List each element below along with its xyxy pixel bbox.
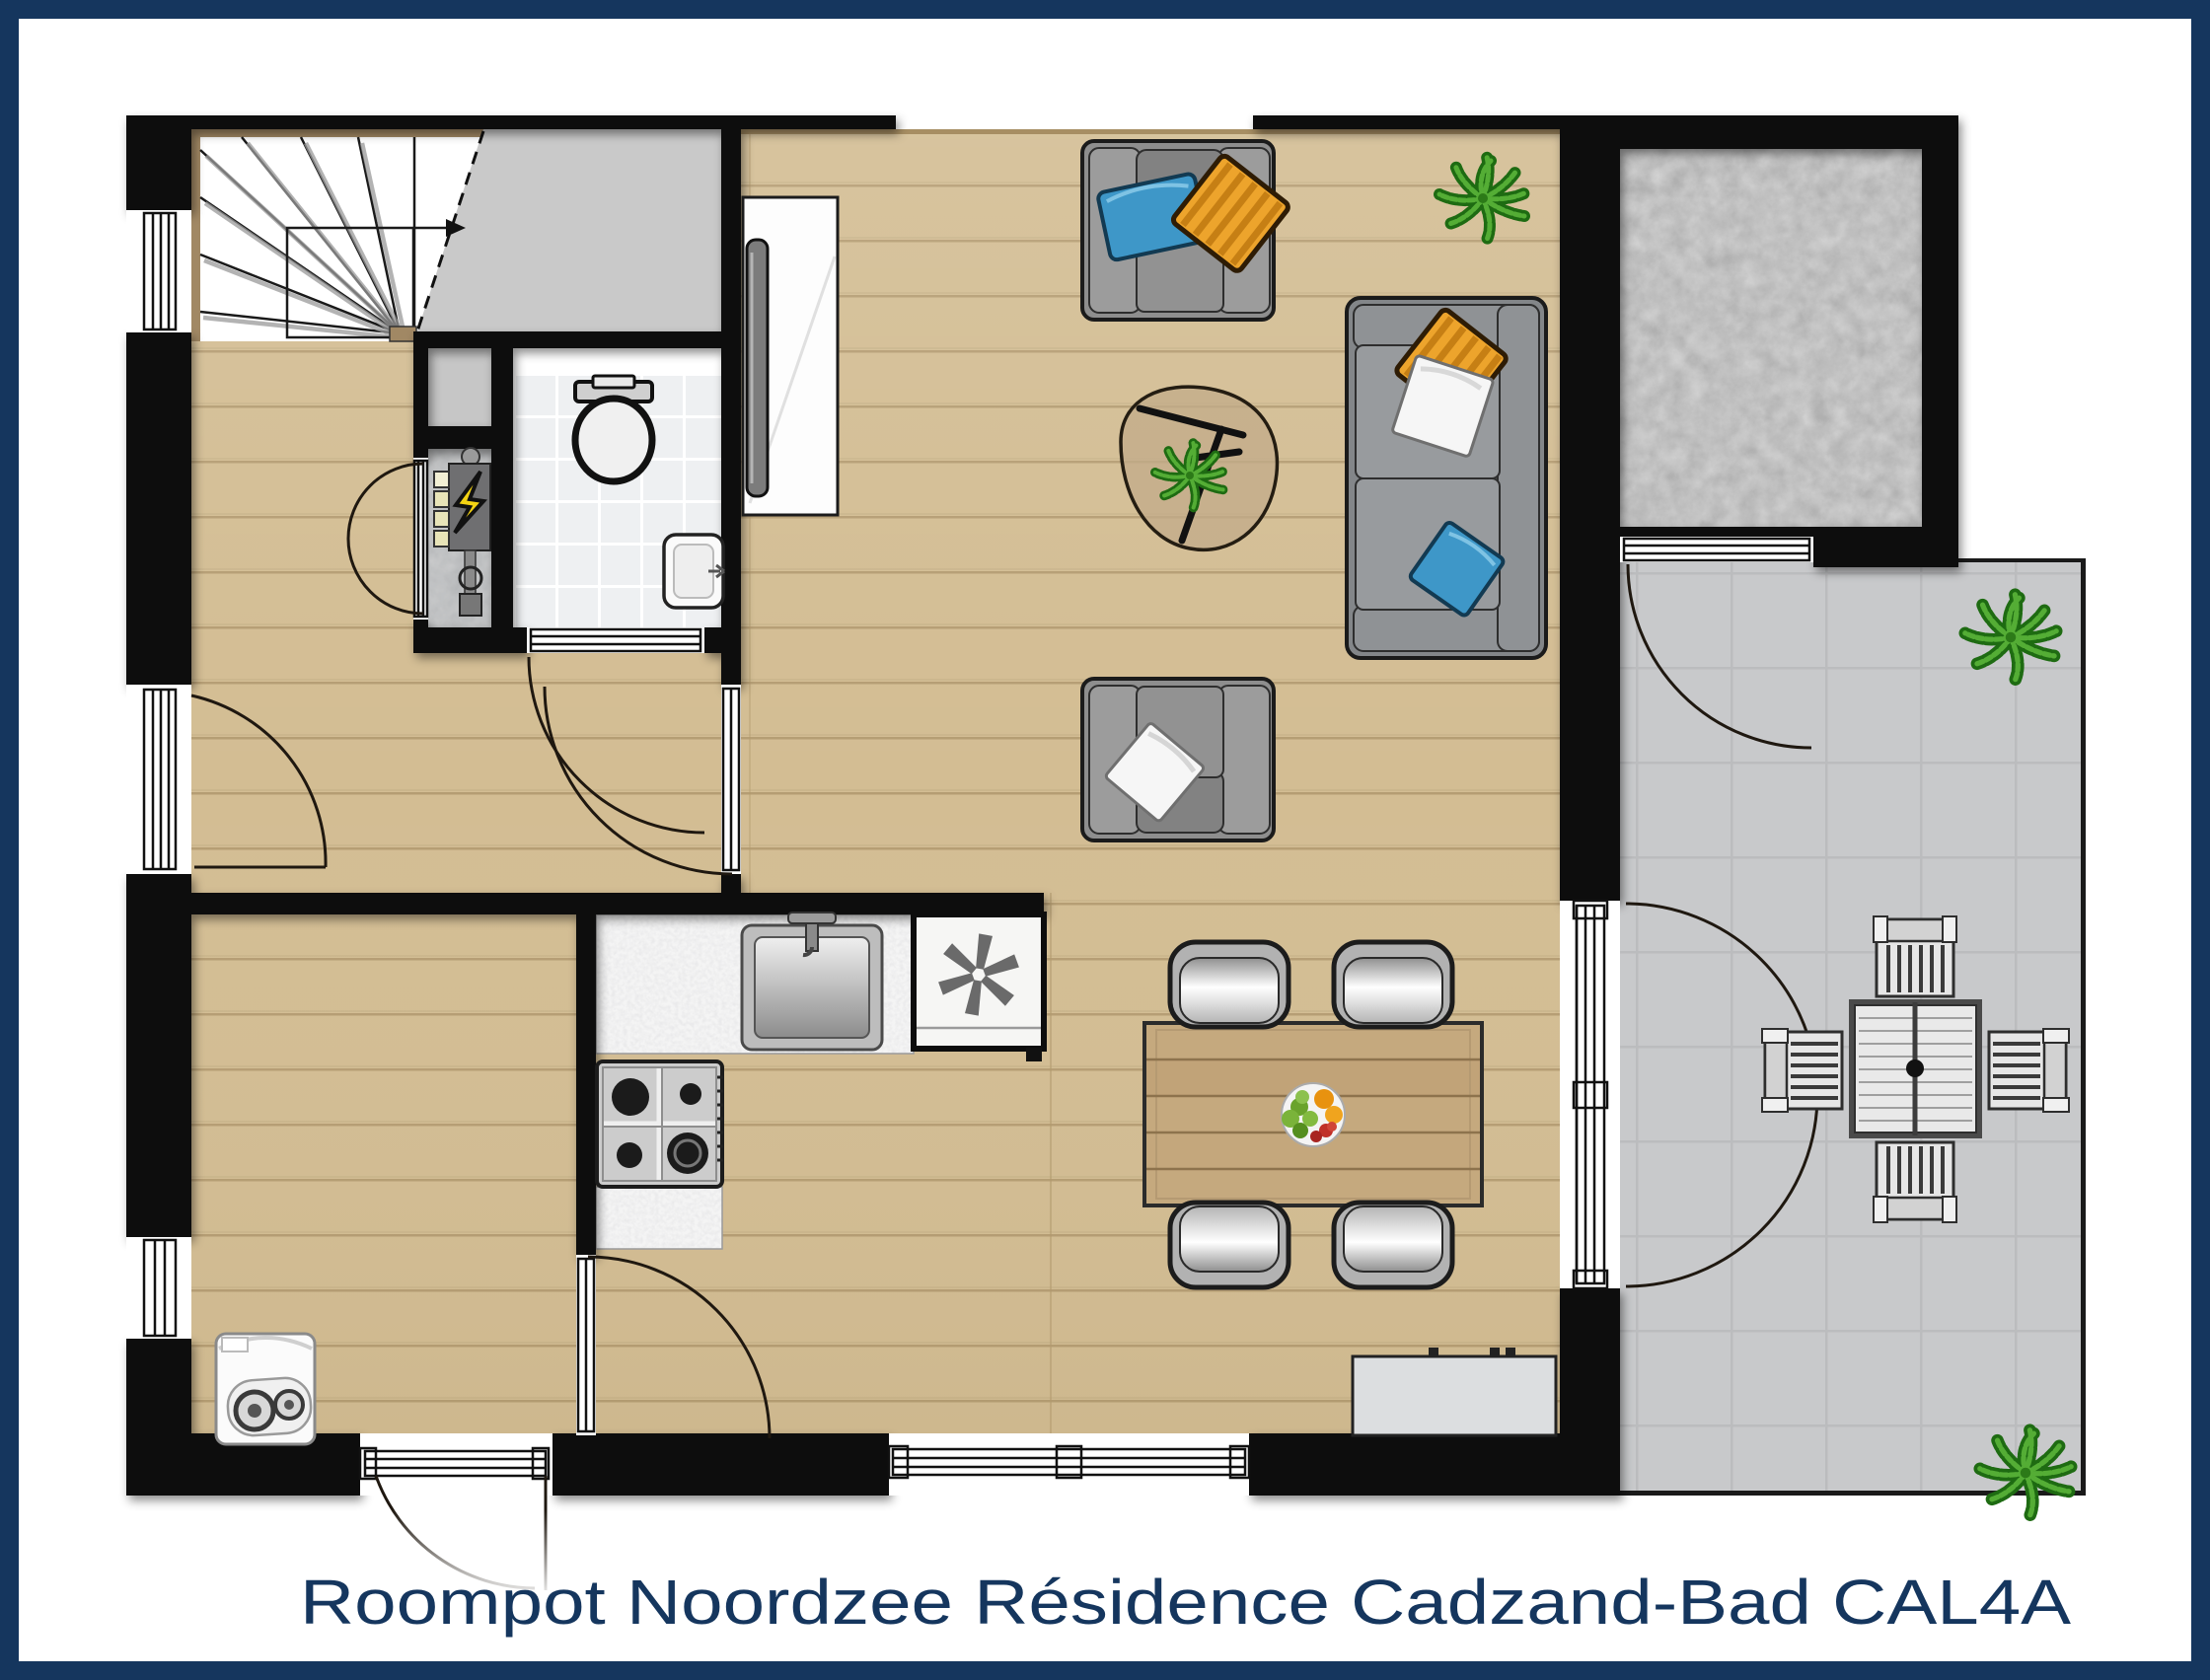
svg-text:Roompot Noordzee Résidence Cad: Roompot Noordzee Résidence Cadzand-Bad C… xyxy=(300,1567,2071,1638)
